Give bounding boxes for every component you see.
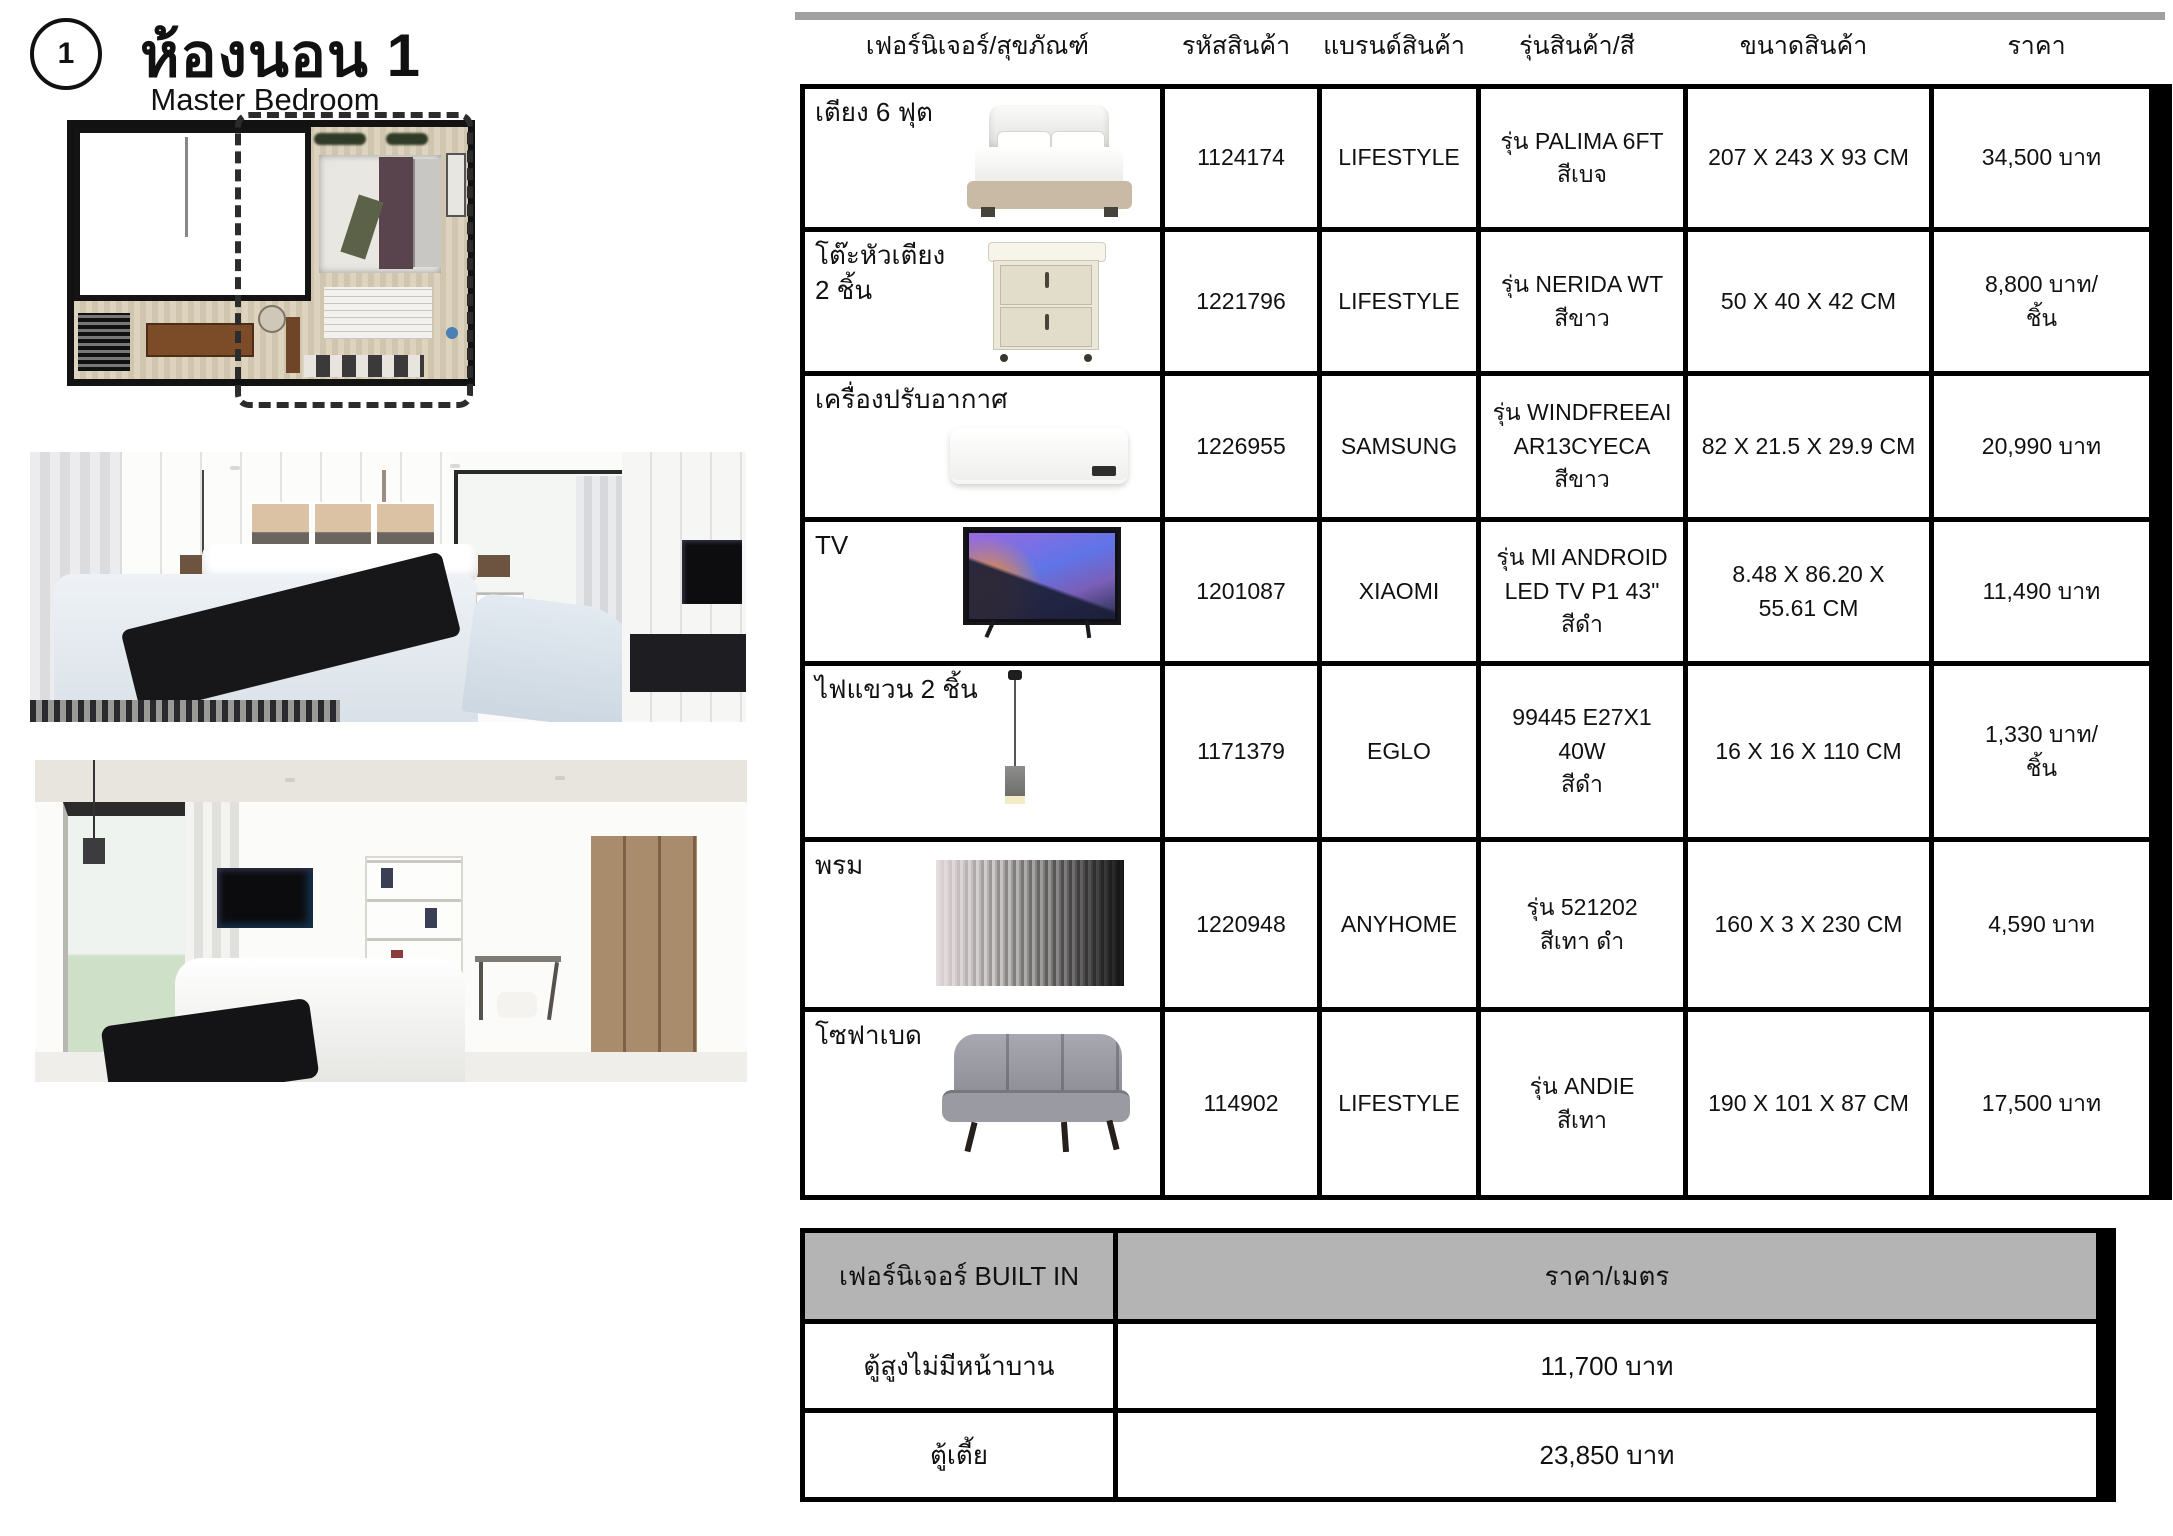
table-row-rug-furniture: พรม: [805, 842, 1160, 1007]
product-name: เตียง 6 ฟุต: [815, 95, 933, 130]
product-brand: LIFESTYLE: [1322, 232, 1476, 371]
ceiling-light: [230, 466, 240, 470]
page-number-badge: 1: [30, 18, 102, 90]
builtin-header-right: ราคา/เมตร: [1118, 1233, 2096, 1319]
product-name: พรม: [815, 848, 863, 883]
render1-tv: [682, 540, 742, 604]
product-brand: LIFESTYLE: [1322, 89, 1476, 227]
render2-tv: [217, 868, 313, 928]
render2-ceiling: [35, 760, 747, 802]
builtin-header-left: เฟอร์นิเจอร์ BUILT IN: [805, 1233, 1113, 1319]
render2-desk: [475, 956, 561, 962]
product-model: รุ่น MI ANDROID LED TV P1 43" สีดำ: [1481, 522, 1683, 661]
air-conditioner-product-image: [950, 428, 1128, 484]
product-code: 1124174: [1165, 89, 1317, 227]
product-price: 17,500 บาท: [1934, 1012, 2149, 1195]
floor-plan-dark-rug: [78, 313, 130, 371]
table-row-tv-furniture: TV: [805, 522, 1160, 661]
product-brand: XIAOMI: [1322, 522, 1476, 661]
sofa-bed-product-image: [942, 1034, 1134, 1152]
table-row-sofabed-furniture: โซฟาเบด: [805, 1012, 1160, 1195]
product-model: รุ่น WINDFREEAI AR13CYECA สีขาว: [1481, 376, 1683, 517]
product-size: 16 X 16 X 110 CM: [1688, 666, 1929, 837]
tv-product-image: [966, 530, 1118, 638]
render2-wardrobe: [591, 836, 697, 1052]
product-code: 1171379: [1165, 666, 1317, 837]
product-model: รุ่น NERIDA WT สีขาว: [1481, 232, 1683, 371]
col-header-model: รุ่นสินค้า/สี: [1476, 22, 1678, 70]
builtin-row-label: ตู้เตี้ย: [805, 1413, 1113, 1497]
product-brand: LIFESTYLE: [1322, 1012, 1476, 1195]
product-price: 20,990 บาท: [1934, 376, 2149, 517]
product-size: 190 X 101 X 87 CM: [1688, 1012, 1929, 1195]
table-row-nightstand-furniture: โต๊ะหัวเตียง 2 ชิ้น: [805, 232, 1160, 371]
product-size: 8.48 X 86.20 X 55.61 CM: [1688, 522, 1929, 661]
product-name: เครื่องปรับอากาศ: [815, 382, 1008, 417]
col-header-brand: แบรนด์สินค้า: [1317, 22, 1471, 70]
builtin-row-label: ตู้สูงไม่มีหน้าบาน: [805, 1324, 1113, 1408]
product-size: 160 X 3 X 230 CM: [1688, 842, 1929, 1007]
spec-sheet-page: { "colors": {"table_border": "#000000", …: [0, 0, 2173, 1536]
product-price: 34,500 บาท: [1934, 89, 2149, 227]
product-code: 1201087: [1165, 522, 1317, 661]
col-header-furniture: เฟอร์นิเจอร์/สุขภัณฑ์: [800, 22, 1155, 70]
spec-table: เตียง 6 ฟุต 1124174 LIFESTYLE รุ่น PALIM…: [800, 84, 2172, 1200]
product-code: 1226955: [1165, 376, 1317, 517]
ceiling-light: [285, 778, 295, 782]
table-top-bar: [795, 12, 2165, 20]
product-model: 99445 E27X1 40W สีดำ: [1481, 666, 1683, 837]
product-name: TV: [815, 528, 848, 563]
rug-product-image: [936, 860, 1124, 986]
ceiling-light: [555, 776, 565, 780]
product-brand: ANYHOME: [1322, 842, 1476, 1007]
col-header-code: รหัสสินค้า: [1160, 22, 1312, 70]
product-code: 1221796: [1165, 232, 1317, 371]
bed-product-image: [967, 105, 1132, 217]
product-price: 8,800 บาท/ ชิ้น: [1934, 232, 2149, 371]
floor-plan-image: [65, 112, 465, 400]
product-size: 50 X 40 X 42 CM: [1688, 232, 1929, 371]
col-header-size: ขนาดสินค้า: [1683, 22, 1924, 70]
render1-rug: [30, 700, 340, 722]
ceiling-light: [450, 464, 460, 468]
render1-media-cabinet: [630, 634, 746, 692]
product-model: รุ่น 521202 สีเทา ดำ: [1481, 842, 1683, 1007]
pendant-lamp-product-image: [1003, 670, 1027, 802]
render2-pendant-lamp: [93, 760, 95, 838]
product-name: โต๊ะหัวเตียง 2 ชิ้น: [815, 238, 945, 308]
table-row-bed-furniture: เตียง 6 ฟุต: [805, 89, 1160, 227]
product-brand: EGLO: [1322, 666, 1476, 837]
floor-plan-highlight-dashed-box: [235, 112, 473, 408]
product-code: 114902: [1165, 1012, 1317, 1195]
product-code: 1220948: [1165, 842, 1317, 1007]
product-price: 1,330 บาท/ ชิ้น: [1934, 666, 2149, 837]
table-row-aircon-furniture: เครื่องปรับอากาศ: [805, 376, 1160, 517]
product-name: โซฟาเบด: [815, 1018, 922, 1053]
table-row-lamp-furniture: ไฟแขวน 2 ชิ้น: [805, 666, 1160, 837]
page-number: 1: [58, 37, 75, 71]
spec-table-header-row: เฟอร์นิเจอร์/สุขภัณฑ์ รหัสสินค้า แบรนด์ส…: [800, 22, 2162, 70]
render-2-bedroom-image: [35, 760, 747, 1082]
floor-plan-partition: [185, 137, 188, 237]
product-brand: SAMSUNG: [1322, 376, 1476, 517]
product-model: รุ่น PALIMA 6FT สีเบจ: [1481, 89, 1683, 227]
col-header-price: ราคา: [1929, 22, 2144, 70]
product-size: 207 X 243 X 93 CM: [1688, 89, 1929, 227]
builtin-row-price: 23,850 บาท: [1118, 1413, 2096, 1497]
product-name: ไฟแขวน 2 ชิ้น: [815, 672, 978, 707]
product-model: รุ่น ANDIE สีเทา: [1481, 1012, 1683, 1195]
product-price: 11,490 บาท: [1934, 522, 2149, 661]
product-price: 4,590 บาท: [1934, 842, 2149, 1007]
nightstand-product-image: [988, 242, 1104, 362]
builtin-table: เฟอร์นิเจอร์ BUILT IN ราคา/เมตร ตู้สูงไม…: [800, 1228, 2116, 1502]
render-1-bedroom-image: [30, 452, 746, 722]
render2-stool: [497, 992, 537, 1018]
product-size: 82 X 21.5 X 29.9 CM: [1688, 376, 1929, 517]
builtin-row-price: 11,700 บาท: [1118, 1324, 2096, 1408]
